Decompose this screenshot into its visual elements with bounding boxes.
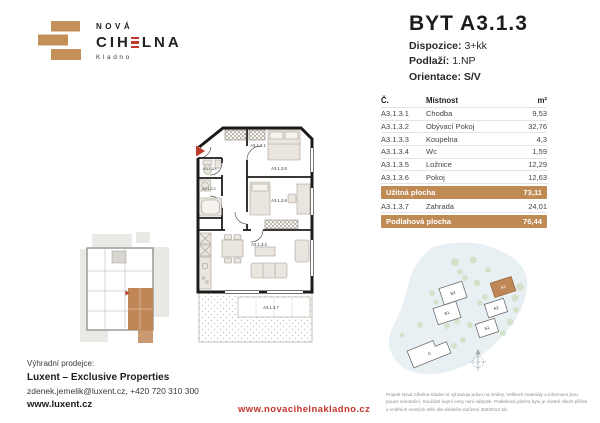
label-living: A3.1.3.2 bbox=[251, 242, 267, 247]
spec-value: S/V bbox=[464, 71, 481, 83]
spec-value: 1.NP bbox=[452, 55, 475, 67]
unit-title: BYT A3.1.3 bbox=[409, 12, 528, 36]
table-row: A3.1.3.5 Ložnice 12,29 bbox=[381, 159, 547, 172]
spec-dispozice: Dispozice: 3+kk bbox=[409, 40, 528, 52]
logo-text: NOVÁ CIH LNA Kladno bbox=[96, 21, 182, 61]
siteplan-svg: B2 B1 A3 A2 A1 C bbox=[378, 232, 590, 384]
terrace-garden bbox=[199, 293, 312, 342]
contact-intro: Výhradní prodejce: bbox=[27, 360, 199, 368]
col-no: Č. bbox=[381, 96, 426, 105]
building-overview-svg bbox=[80, 231, 192, 346]
contact-block: Výhradní prodejce: Luxent – Exclusive Pr… bbox=[27, 360, 199, 410]
label-bedroom: A3.1.3.5 bbox=[271, 166, 287, 171]
logo-nova: NOVÁ bbox=[96, 22, 182, 31]
logo-cihelna: CIH LNA bbox=[96, 34, 182, 51]
contact-company: Luxent – Exclusive Properties bbox=[27, 373, 199, 383]
usable-label: Užitná plocha bbox=[386, 188, 435, 197]
table-row: A3.1.3.4 Wc 1,59 bbox=[381, 146, 547, 159]
spec-podlazi: Podlaží: 1.NP bbox=[409, 55, 528, 67]
unit-header: BYT A3.1.3 Dispozice: 3+kk Podlaží: 1.NP… bbox=[409, 12, 528, 83]
table-row: A3.1.3.1 Chodba 9,53 bbox=[381, 108, 547, 121]
table-row: A3.1.3.2 Obývací Pokoj 32,76 bbox=[381, 121, 547, 134]
contact-website-link[interactable]: www.luxent.cz bbox=[27, 400, 199, 410]
total-area-row: Podlahová plocha 76,44 bbox=[381, 215, 547, 229]
total-label: Podlahová plocha bbox=[386, 217, 451, 226]
table-row: A3.1.3.3 Koupelna 4,3 bbox=[381, 133, 547, 146]
logo-city: Kladno bbox=[96, 54, 182, 61]
label-wc: A3.1.3.4 bbox=[203, 167, 216, 171]
label-garden: A3.1.3.7 bbox=[263, 305, 279, 310]
col-area: m² bbox=[537, 96, 547, 105]
highlighted-unit bbox=[126, 288, 154, 343]
table-row-garden: A3.1.3.7 Zahrada 24,01 bbox=[381, 201, 547, 214]
contact-details[interactable]: zdenek.jemelik@luxent.cz, +420 720 310 3… bbox=[27, 387, 199, 396]
room-table: Č. Místnost m² A3.1.3.1 Chodba 9,53 A3.1… bbox=[381, 94, 547, 230]
disclaimer-text: Projekt Nová Cihelna Kladno si vyhrazuje… bbox=[386, 391, 588, 413]
logo: NOVÁ CIH LNA Kladno bbox=[38, 21, 182, 61]
usable-value: 73,11 bbox=[523, 188, 542, 197]
spec-label: Podlaží: bbox=[409, 55, 449, 67]
col-room: Místnost bbox=[426, 96, 537, 105]
label-room: A3.1.3.6 bbox=[271, 198, 287, 203]
spec-label: Dispozice: bbox=[409, 40, 462, 52]
spec-label: Orientace: bbox=[409, 71, 461, 83]
label-bath: A3.1.3.3 bbox=[202, 187, 215, 191]
spec-orientace: Orientace: S/V bbox=[409, 71, 528, 83]
brochure-page: NOVÁ CIH LNA Kladno BYT A3.1.3 Dispozice… bbox=[0, 0, 600, 423]
table-header: Č. Místnost m² bbox=[381, 94, 547, 108]
floorplan-svg: A3.1.3.1 A3.1.3.4 A3.1.3.3 A3.1.3.5 A3.1… bbox=[195, 100, 365, 345]
spec-value: 3+kk bbox=[464, 40, 486, 52]
label-hall: A3.1.3.1 bbox=[250, 143, 266, 148]
logo-name-post: LNA bbox=[142, 34, 182, 51]
bricks-icon bbox=[38, 21, 82, 61]
logo-name-pre: CIH bbox=[96, 34, 131, 51]
red-e-bars-icon bbox=[131, 37, 139, 49]
total-value: 76,44 bbox=[523, 217, 542, 226]
table-row: A3.1.3.6 Pokoj 12,63 bbox=[381, 171, 547, 184]
project-website-link[interactable]: www.novacihelnakladno.cz bbox=[238, 404, 370, 415]
usable-area-row: Užitná plocha 73,11 bbox=[381, 186, 547, 200]
